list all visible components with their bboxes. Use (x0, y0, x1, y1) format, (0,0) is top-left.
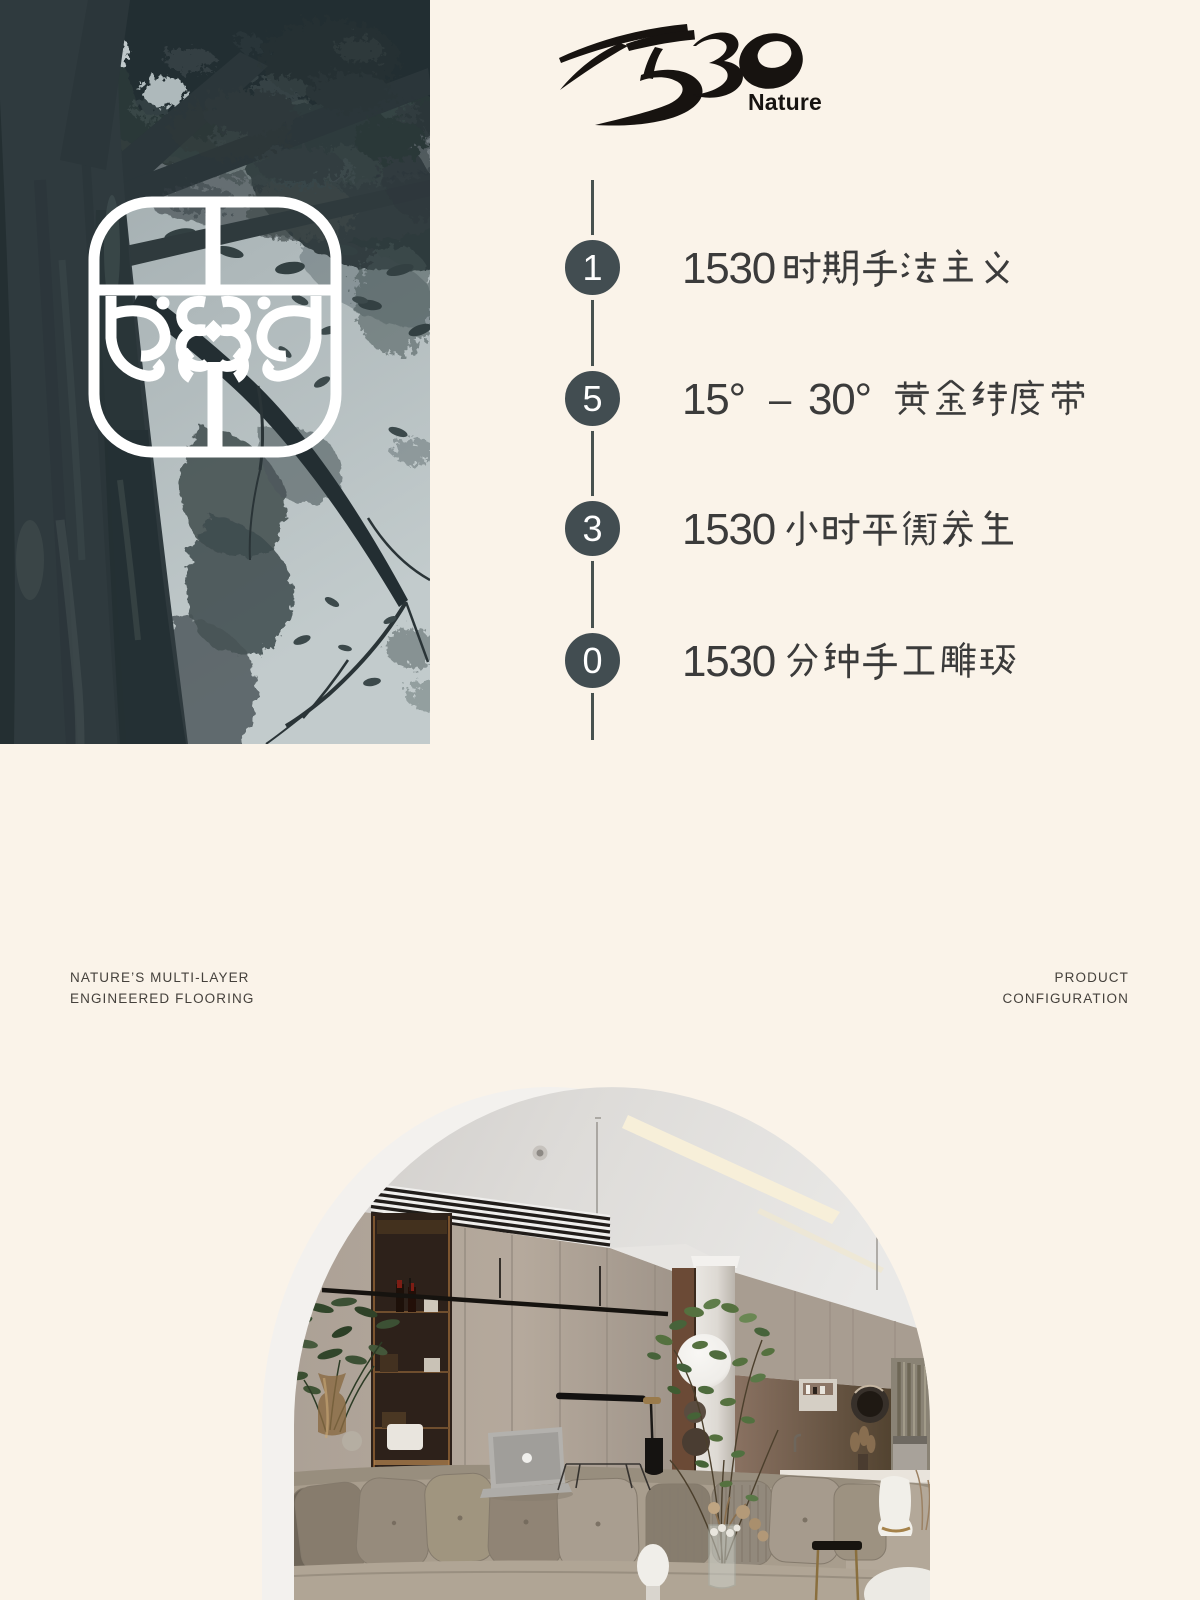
svg-text:15°: 15° (684, 375, 745, 423)
svg-text:1530: 1530 (684, 637, 775, 685)
svg-text:1530: 1530 (684, 244, 775, 292)
svg-text:Nature: Nature (748, 89, 822, 115)
svg-text:30°: 30° (808, 375, 871, 423)
svg-text:–: – (769, 378, 792, 422)
svg-text:1530: 1530 (684, 505, 775, 553)
